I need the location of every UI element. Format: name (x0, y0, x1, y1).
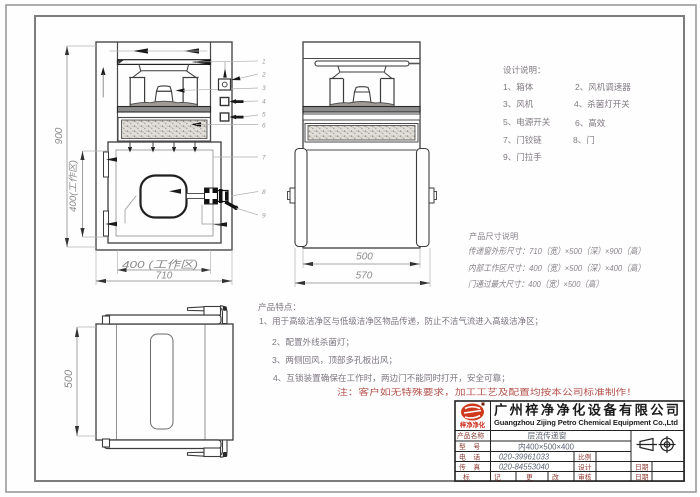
svg-text:500: 500 (63, 369, 75, 388)
svg-text:注：客户如无特殊要求，加工工艺及配置均按本公司标准制作！: 注：客户如无特殊要求，加工工艺及配置均按本公司标准制作！ (337, 386, 637, 397)
svg-text:400 (工作区): 400 (工作区) (122, 259, 198, 271)
svg-text:500: 500 (356, 252, 373, 263)
svg-text:产品特点：: 产品特点： (258, 301, 301, 312)
svg-text:标: 标 (463, 473, 470, 482)
svg-text:日期: 日期 (635, 464, 649, 472)
svg-text:传递窗外形尺寸：710（宽）×500（深）×900（高）: 传递窗外形尺寸：710（宽）×500（深）×900（高） (468, 246, 645, 256)
svg-text:4、杀菌灯开关: 4、杀菌灯开关 (574, 99, 630, 109)
svg-text:8: 8 (262, 189, 266, 196)
svg-text:570: 570 (356, 271, 373, 282)
svg-text:1、箱体: 1、箱体 (503, 82, 534, 92)
svg-text:020-39961033: 020-39961033 (499, 453, 550, 462)
svg-text:内部工作区尺寸：400（宽）×500（深）×400（高）: 内部工作区尺寸：400（宽）×500（深）×400（高） (468, 263, 645, 273)
svg-text:9、门拉手: 9、门拉手 (503, 152, 542, 162)
svg-text:日期: 日期 (635, 474, 649, 482)
svg-text:020-84553040: 020-84553040 (499, 463, 550, 472)
svg-text:2: 2 (261, 72, 266, 79)
svg-text:门通过最大尺寸：400（宽）×500（高）: 门通过最大尺寸：400（宽）×500（高） (468, 279, 603, 289)
svg-text:900: 900 (54, 127, 65, 144)
svg-text:9: 9 (262, 213, 266, 220)
svg-text:710: 710 (156, 271, 173, 282)
svg-text:8、门: 8、门 (573, 135, 595, 145)
svg-text:改: 改 (552, 473, 559, 482)
svg-text:电 话: 电 话 (459, 453, 480, 462)
svg-text:5: 5 (262, 112, 266, 119)
svg-text:产品尺寸说明: 产品尺寸说明 (469, 231, 518, 241)
svg-text:型 号: 型 号 (459, 442, 480, 451)
svg-text:5、电源开关: 5、电源开关 (503, 117, 551, 127)
svg-text:2、风机调速器: 2、风机调速器 (575, 82, 631, 92)
svg-text:7: 7 (262, 155, 266, 162)
svg-text:设计: 设计 (578, 463, 592, 472)
svg-text:6、高效: 6、高效 (575, 118, 606, 128)
svg-text:层流传递窗: 层流传递窗 (528, 431, 567, 441)
svg-text:3、风机: 3、风机 (503, 99, 534, 109)
svg-text:产品名称: 产品名称 (457, 431, 484, 440)
svg-text:4、互锁装置确保在工作时，两边门不能同时打开，安全可靠；: 4、互锁装置确保在工作时，两边门不能同时打开，安全可靠； (273, 372, 510, 383)
svg-text:梓净净化: 梓净净化 (460, 420, 486, 429)
svg-text:传 真: 传 真 (459, 463, 480, 472)
svg-text:3: 3 (262, 85, 266, 92)
svg-text:400(工作区): 400(工作区) (68, 160, 78, 212)
svg-text:Guangzhou Zijing Petro Chemica: Guangzhou Zijing Petro Chemical Equipmen… (494, 418, 678, 427)
svg-text:记: 记 (494, 474, 501, 482)
svg-text:更: 更 (526, 474, 533, 482)
svg-text:设计说明：: 设计说明： (503, 65, 546, 75)
svg-text:3、两侧回风，顶部多孔板出风；: 3、两侧回风，顶部多孔板出风； (272, 354, 397, 365)
svg-text:内400×500×400: 内400×500×400 (518, 442, 575, 452)
svg-text:1: 1 (262, 59, 266, 66)
svg-text:审核: 审核 (578, 473, 592, 482)
svg-text:7、门铰链: 7、门铰链 (503, 135, 542, 145)
svg-text:6: 6 (262, 123, 266, 130)
svg-text:2、配置外线杀菌灯；: 2、配置外线杀菌灯； (272, 336, 354, 347)
svg-text:比例: 比例 (578, 453, 592, 462)
svg-text:1、用于高级洁净区与低级洁净区物品传递，防止不洁气流进入高级: 1、用于高级洁净区与低级洁净区物品传递，防止不洁气流进入高级洁净区； (259, 315, 543, 326)
svg-text:4: 4 (262, 99, 266, 106)
